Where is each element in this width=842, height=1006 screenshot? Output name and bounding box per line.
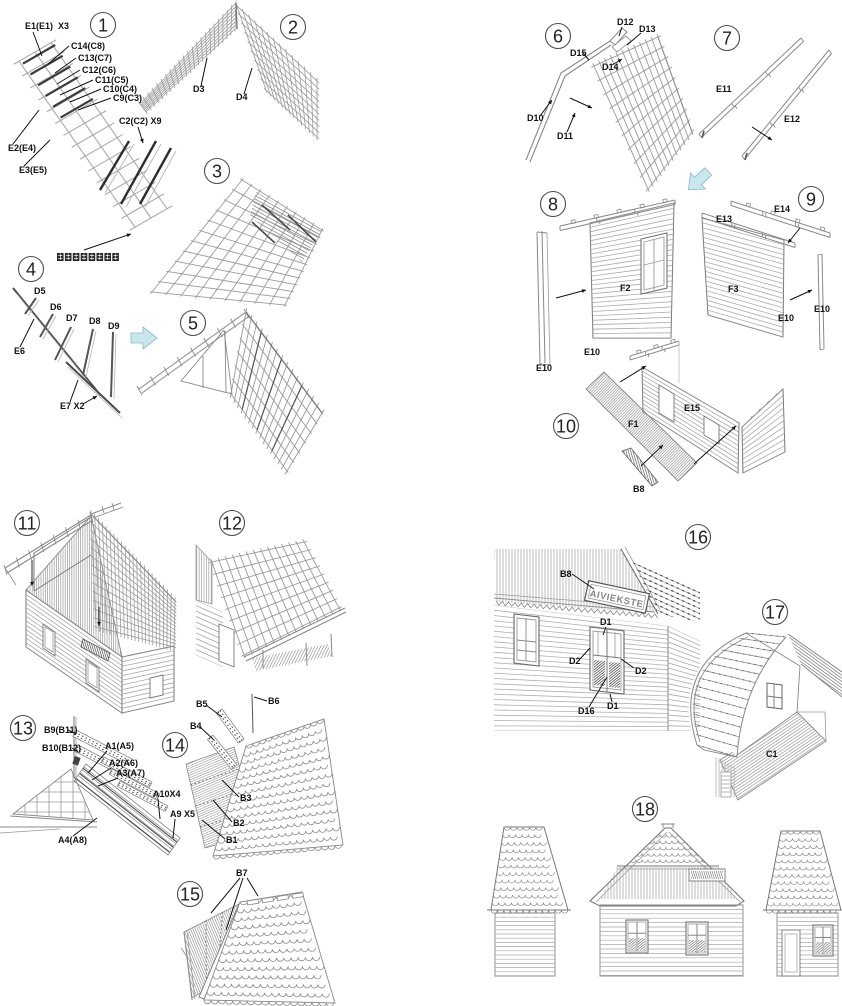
svg-text:16: 16 [688, 528, 708, 548]
svg-text:D8: D8 [89, 316, 101, 326]
svg-text:D1: D1 [600, 617, 612, 627]
svg-text:F3: F3 [728, 284, 739, 294]
svg-text:17: 17 [765, 603, 785, 623]
svg-text:A3(A7): A3(A7) [116, 768, 145, 778]
svg-text:B8: B8 [560, 569, 572, 579]
svg-text:E12: E12 [784, 114, 800, 124]
svg-text:18: 18 [635, 800, 655, 820]
svg-text:13: 13 [13, 719, 33, 739]
svg-text:B7: B7 [236, 868, 248, 878]
svg-text:3: 3 [212, 162, 222, 182]
svg-text:E14: E14 [774, 204, 790, 214]
svg-text:D16: D16 [578, 706, 595, 716]
svg-text:1: 1 [98, 16, 108, 36]
svg-text:B3: B3 [240, 793, 252, 803]
svg-text:F2: F2 [620, 283, 631, 293]
svg-text:A4(A8): A4(A8) [58, 835, 87, 845]
svg-text:11: 11 [18, 514, 37, 534]
svg-text:E3(E5): E3(E5) [19, 165, 47, 175]
svg-text:5: 5 [188, 314, 198, 334]
svg-text:9: 9 [806, 190, 816, 210]
svg-text:D13: D13 [639, 24, 656, 34]
svg-text:E6: E6 [14, 346, 25, 356]
svg-text:E2(E4): E2(E4) [8, 143, 36, 153]
svg-text:7: 7 [722, 29, 732, 49]
svg-text:B8: B8 [633, 484, 645, 494]
svg-text:14: 14 [165, 736, 185, 756]
svg-text:D12: D12 [617, 17, 634, 27]
svg-text:B5: B5 [196, 699, 208, 709]
svg-text:A2(A6): A2(A6) [109, 758, 138, 768]
svg-text:C13(C7): C13(C7) [78, 53, 112, 63]
svg-text:15: 15 [180, 885, 200, 905]
svg-text:C14(C8): C14(C8) [71, 41, 105, 51]
svg-text:B6: B6 [268, 696, 280, 706]
svg-text:E10: E10 [778, 313, 794, 323]
svg-text:D11: D11 [557, 131, 573, 141]
svg-text:A9 X5: A9 X5 [170, 809, 195, 819]
svg-text:D7: D7 [66, 313, 78, 323]
svg-text:D2: D2 [635, 666, 647, 676]
svg-text:E10: E10 [814, 304, 830, 314]
svg-text:F1: F1 [628, 419, 639, 429]
svg-text:C12(C6): C12(C6) [82, 65, 116, 75]
svg-text:B1: B1 [226, 835, 238, 845]
svg-text:B9(B11): B9(B11) [44, 725, 78, 735]
svg-text:A1(A5): A1(A5) [105, 741, 134, 751]
svg-text:6: 6 [553, 27, 563, 47]
svg-text:B4: B4 [190, 721, 202, 731]
svg-text:D4: D4 [236, 92, 248, 102]
svg-text:4: 4 [26, 260, 36, 280]
svg-text:8: 8 [548, 195, 558, 215]
svg-text:C1: C1 [766, 749, 778, 759]
svg-text:D2: D2 [569, 656, 581, 666]
svg-text:E11: E11 [716, 84, 732, 94]
svg-text:B2: B2 [233, 818, 245, 828]
svg-text:E10: E10 [584, 347, 600, 357]
svg-text:A10X4: A10X4 [153, 789, 181, 799]
svg-text:10: 10 [556, 417, 576, 437]
svg-text:E15: E15 [684, 403, 700, 413]
svg-text:2: 2 [288, 18, 298, 38]
svg-text:D3: D3 [193, 84, 205, 94]
svg-text:D6: D6 [50, 302, 62, 312]
svg-text:D1: D1 [607, 701, 619, 711]
svg-text:D15: D15 [570, 48, 587, 58]
svg-text:B10(B12): B10(B12) [42, 743, 81, 753]
svg-text:E1(E1) X3: E1(E1) X3 [25, 21, 69, 31]
svg-text:D14: D14 [602, 62, 619, 72]
svg-text:E10: E10 [536, 363, 552, 373]
svg-text:C9(C3): C9(C3) [113, 93, 142, 103]
svg-text:12: 12 [222, 514, 242, 534]
svg-text:D5: D5 [34, 286, 46, 296]
svg-text:D9: D9 [108, 321, 120, 331]
svg-text:E13: E13 [716, 214, 732, 224]
svg-text:E7 X2: E7 X2 [60, 401, 85, 411]
svg-text:C2(C2) X9: C2(C2) X9 [119, 116, 162, 126]
